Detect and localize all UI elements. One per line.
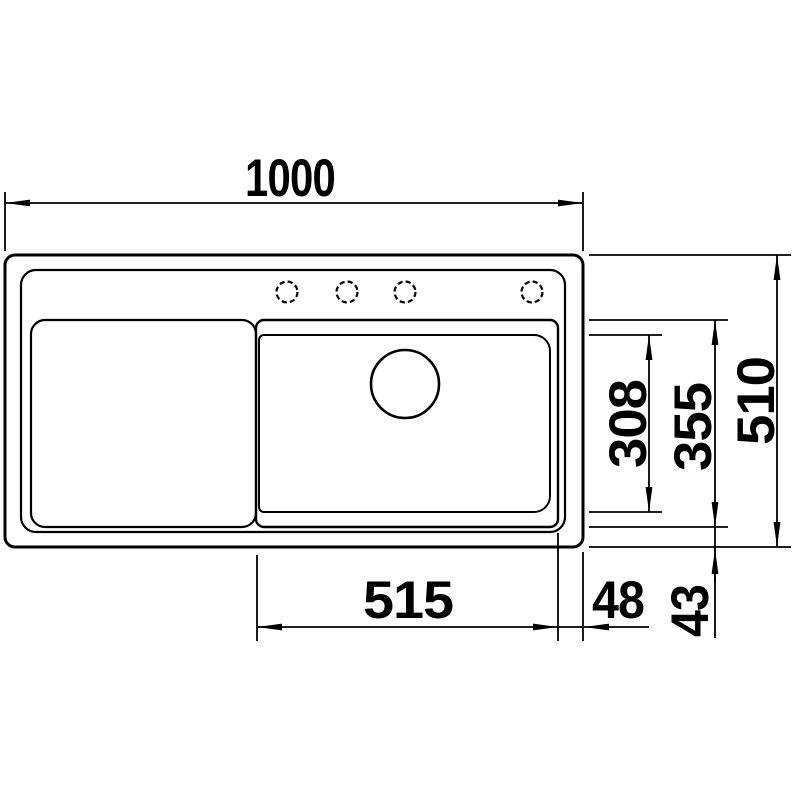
dim-overall-width-label: 1000: [245, 149, 335, 208]
sink-dimension-drawing: 1000 308 355 43 510 515 48: [0, 0, 800, 800]
sink-outer-edge: [5, 255, 583, 547]
tap-hole-1: [277, 282, 298, 303]
drainboard: [31, 320, 256, 527]
technical-drawing-canvas: 1000 308 355 43 510 515 48: [0, 0, 800, 800]
sink-top-view: [5, 255, 583, 547]
sink-rim: [21, 270, 565, 532]
tap-hole-2: [337, 282, 358, 303]
dimension-bottom: 515 48: [257, 533, 649, 641]
dim-bowl-width-label: 515: [363, 571, 453, 630]
tap-hole-4: [522, 282, 543, 303]
dim-overall-depth-label: 510: [727, 357, 786, 445]
dimension-overall-width: 1000: [5, 149, 583, 251]
dim-bowl-right-offset-label: 48: [592, 571, 644, 630]
drain-hole: [371, 350, 439, 418]
tap-hole-3: [395, 282, 416, 303]
dim-bowl-inner-depth-label: 308: [599, 380, 658, 468]
dim-bowl-outer-depth-label: 355: [664, 383, 723, 471]
bowl-inner-edge: [259, 335, 550, 512]
dim-bowl-bottom-offset-label: 43: [661, 585, 720, 637]
